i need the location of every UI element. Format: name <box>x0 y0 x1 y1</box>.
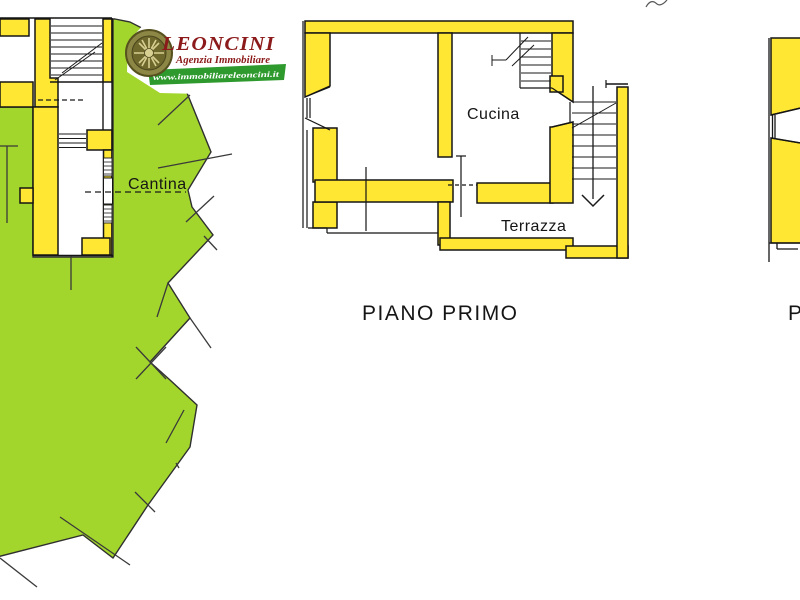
pen-squiggle-mark <box>646 0 667 7</box>
floorplan-drawing: Cantina <box>0 0 800 600</box>
floor-plan-first: Cucina Terrazza PIANO PRIMO <box>303 21 628 325</box>
floorplan-page: Cantina <box>0 0 800 600</box>
terrazza-label: Terrazza <box>501 218 566 235</box>
logo-title-text: LEONCINI <box>161 33 275 55</box>
logo-subtitle-text: Agenzia Immobiliare <box>175 55 270 66</box>
floor-plan-right-partial: P <box>769 38 800 325</box>
first-walls <box>305 21 628 258</box>
piano-primo-title: PIANO PRIMO <box>362 302 519 325</box>
ground-windows <box>104 158 113 223</box>
cucina-label: Cucina <box>467 106 520 123</box>
right-plan-title-partial: P <box>788 302 800 325</box>
first-external-stair <box>572 86 616 206</box>
first-internal-stair <box>492 37 551 81</box>
cantina-label: Cantina <box>128 176 187 193</box>
agency-logo: LEONCINI Agenzia Immobiliare www.immobil… <box>126 12 287 95</box>
